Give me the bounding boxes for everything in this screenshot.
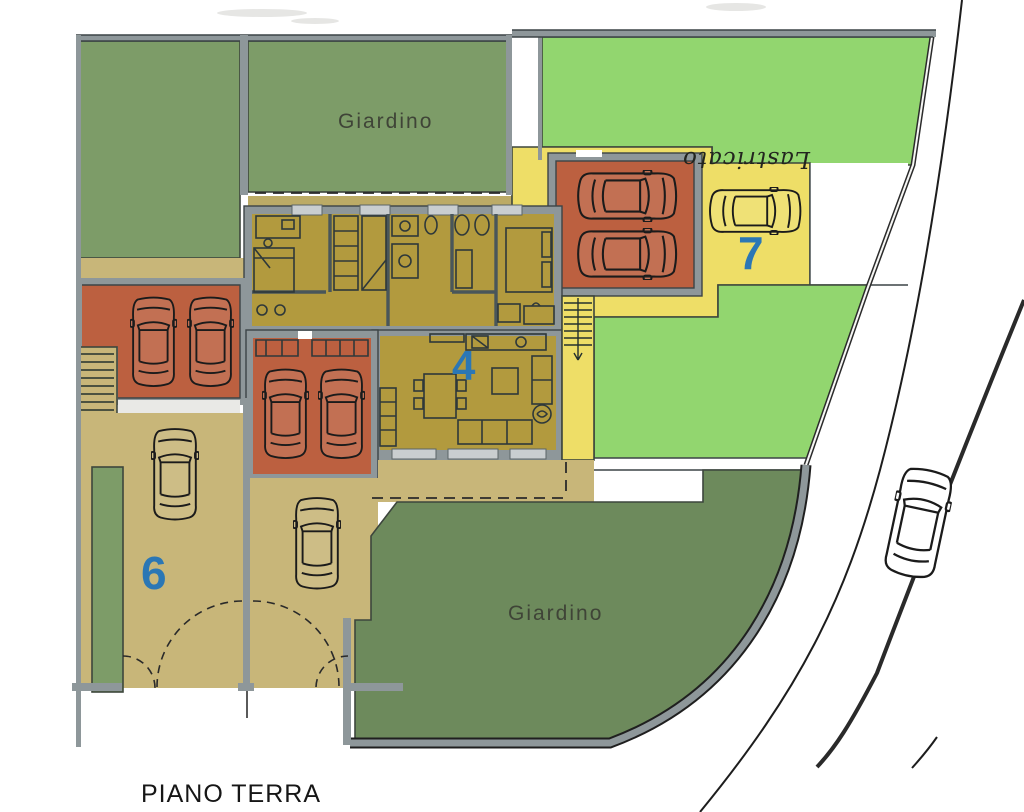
garden-top-left [80,41,245,278]
car-top-view [187,298,234,387]
car-top-view [130,298,177,387]
garden-top-label: Giardino [338,110,433,134]
garage-apron [118,400,240,413]
plan-title: PIANO TERRA [141,780,321,809]
car-top-view [151,429,199,519]
unit-7-number: 7 [738,226,764,280]
car-top-view [318,370,365,459]
garden-bottom-label: Giardino [508,602,603,626]
window-openings [392,449,546,459]
car-top-view [578,170,676,222]
handwritten-note: Lastricato [676,146,816,172]
site-plan-page: Giardino Giardino 4 6 7 Lastricato PIANO… [0,0,1024,812]
unit-4-number: 4 [452,342,475,390]
site-plan-drawing [0,0,1024,812]
building-unit-4-bedroom-wing [244,205,562,332]
garage-unit-5 [246,330,378,480]
garage-door-opening [298,331,312,339]
exterior-stairs-unit-4 [562,296,594,460]
patio [372,460,594,502]
garden-strip-left [92,467,123,692]
car-top-view [262,370,309,459]
garage-door-opening [576,150,602,157]
unit-6-number: 6 [141,546,167,600]
car-top-view [293,498,341,588]
car-top-view [578,228,676,280]
garden-path [594,458,806,470]
